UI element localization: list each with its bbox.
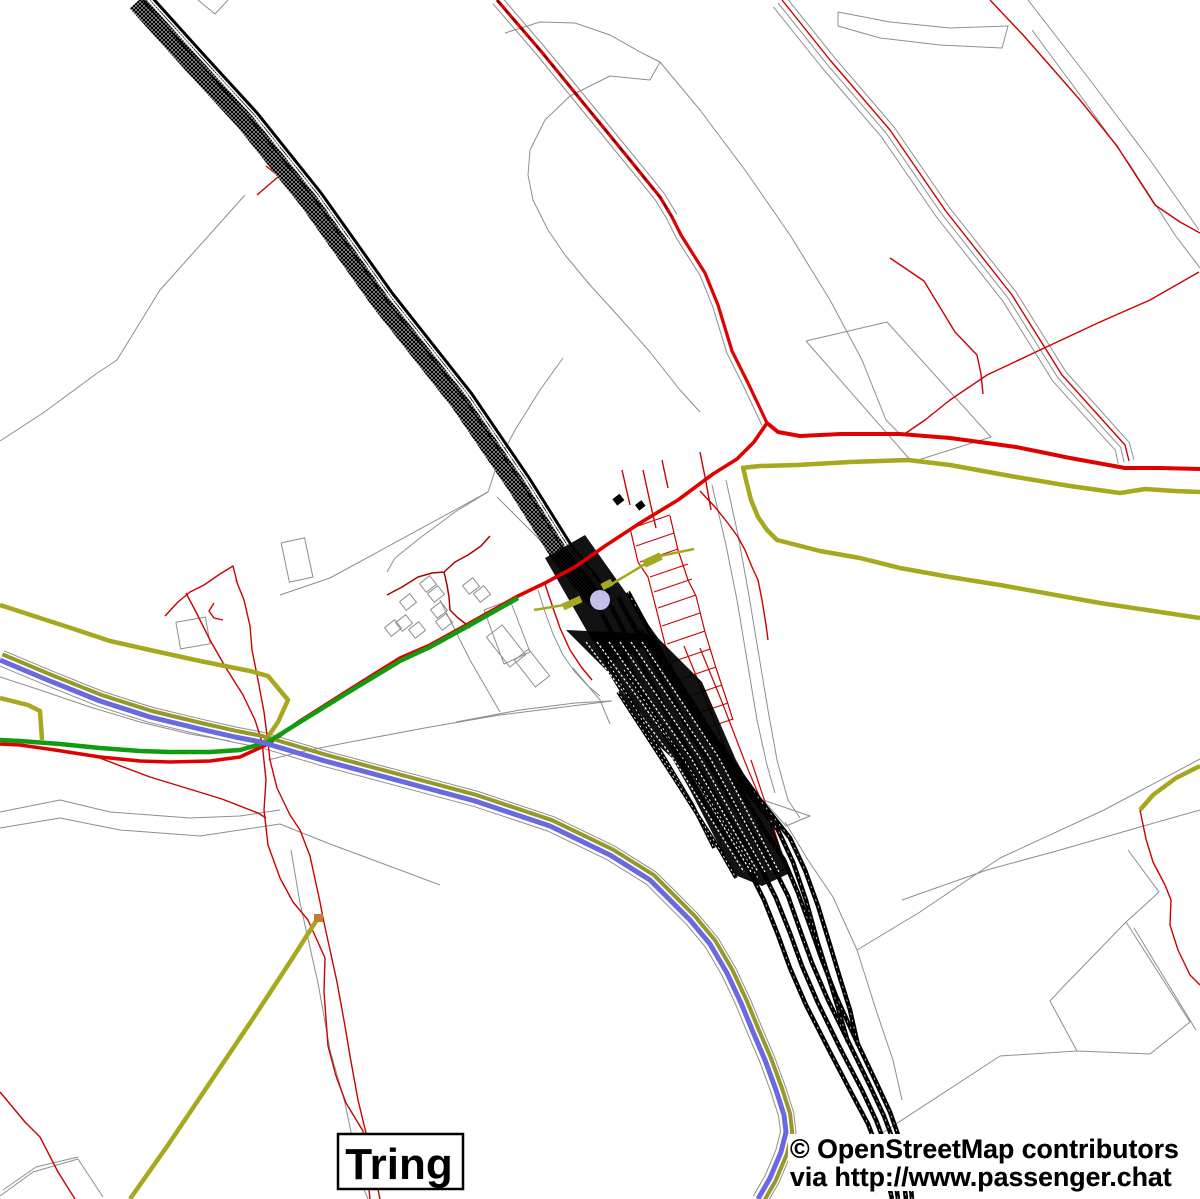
svg-text:Tring: Tring [345, 1140, 453, 1189]
svg-text:© OpenStreetMap contributors: © OpenStreetMap contributors [790, 1134, 1179, 1164]
svg-text:via http://www.passenger.chat: via http://www.passenger.chat [790, 1162, 1172, 1192]
